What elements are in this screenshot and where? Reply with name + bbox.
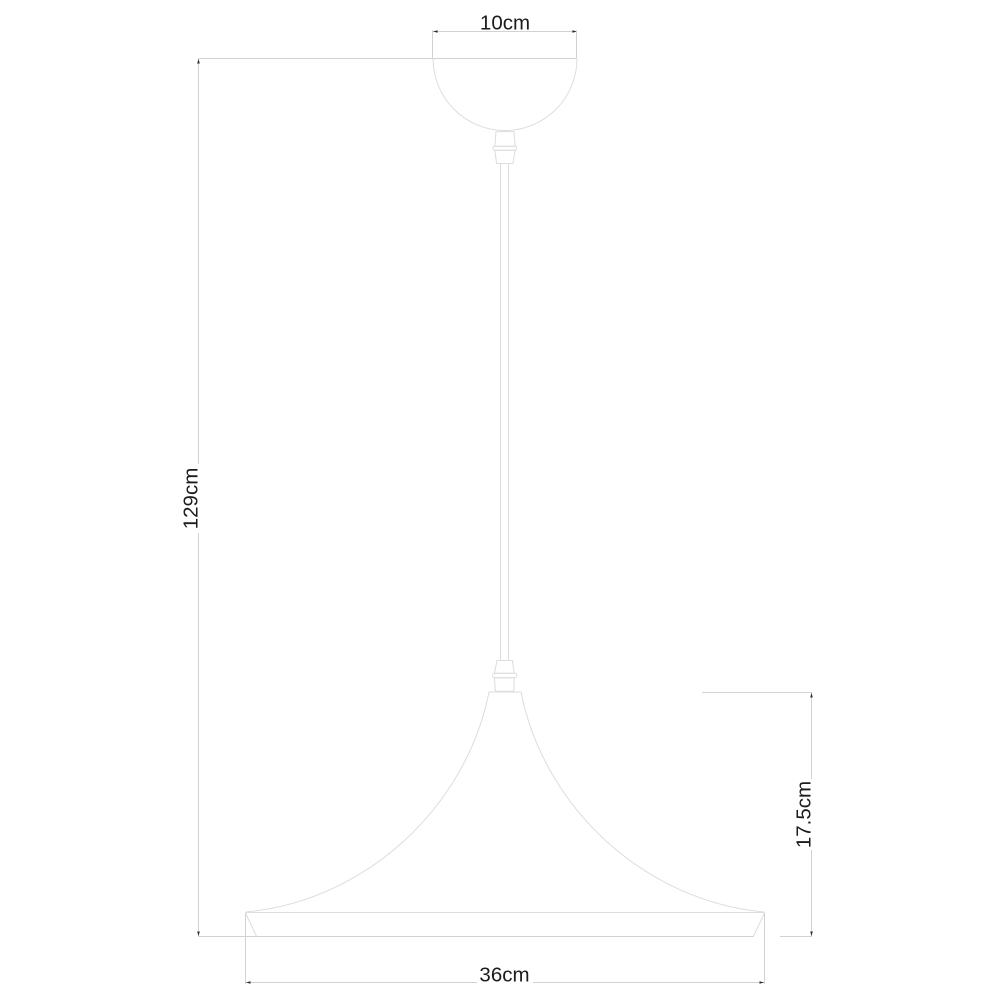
svg-text:129cm: 129cm: [180, 468, 203, 530]
svg-text:10cm: 10cm: [480, 12, 530, 35]
svg-text:17.5cm: 17.5cm: [793, 781, 816, 848]
svg-text:36cm: 36cm: [479, 964, 529, 987]
